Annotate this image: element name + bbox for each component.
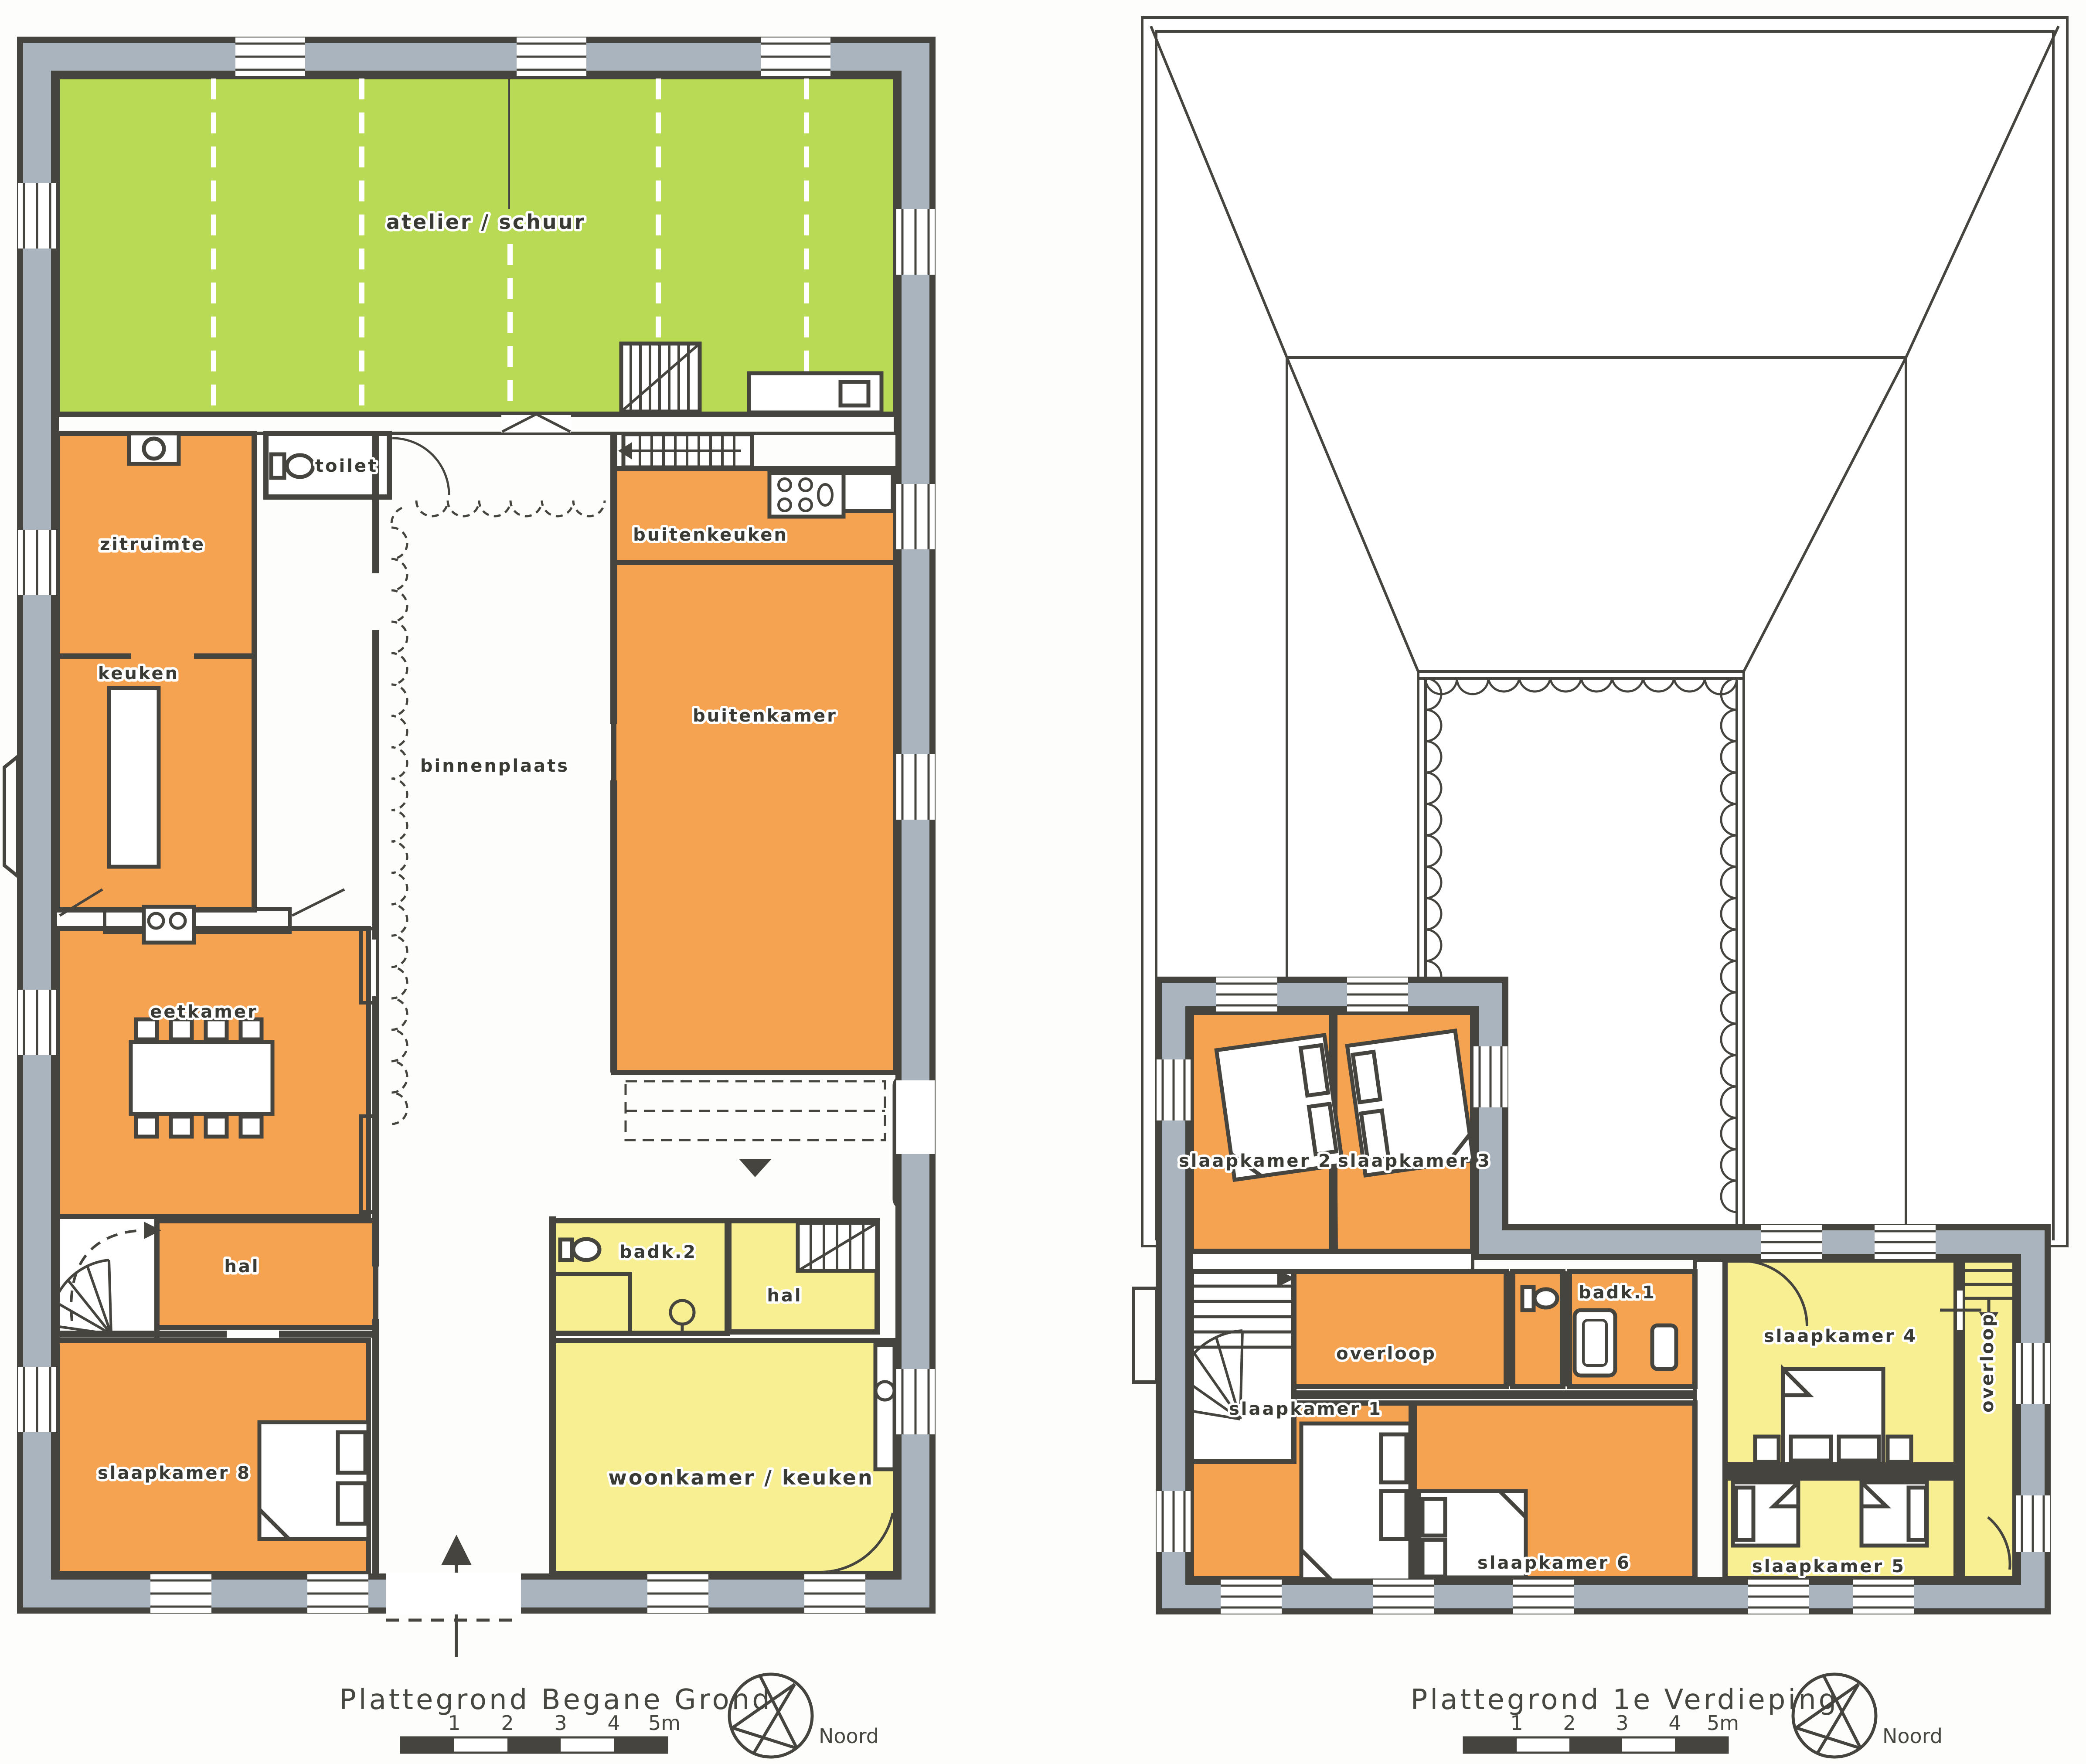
- room-woonkamer-keuken: [553, 1341, 895, 1573]
- window-icon: [307, 1574, 368, 1613]
- gate-opening: [386, 1573, 521, 1614]
- room-label-slaapkamer-8: slaapkamer 8: [98, 1463, 251, 1483]
- window-icon: [18, 183, 56, 249]
- section-marker-down: [739, 1159, 772, 1177]
- scale-tick: 4: [607, 1711, 620, 1735]
- window-icon: [2016, 1495, 2050, 1552]
- scale-tick: 3: [1616, 1711, 1628, 1735]
- north-label: Noord: [819, 1724, 879, 1748]
- window-icon: [18, 1367, 56, 1432]
- window-icon: [235, 37, 305, 76]
- room-label-slaapkamer-5: slaapkamer 5: [1752, 1556, 1906, 1577]
- scale-tick: 4: [1668, 1711, 1681, 1735]
- window-icon: [761, 37, 830, 76]
- window-icon: [1221, 1580, 1282, 1614]
- room-label-binnenplaats: binnenplaats: [420, 756, 569, 776]
- door-arc: [392, 438, 449, 495]
- room-label-badkamer-1: badk.1: [1579, 1283, 1656, 1303]
- window-icon: [1216, 977, 1277, 1011]
- kitchen-island-icon: [109, 688, 159, 867]
- scale-tick: 2: [501, 1711, 514, 1735]
- scale-bar: 1 2 3 4 5m: [401, 1711, 681, 1753]
- window-icon: [1875, 1225, 1936, 1259]
- room-label-hal-2: hal: [767, 1286, 802, 1306]
- room-label-slaapkamer-1: slaapkamer 1: [1229, 1399, 1382, 1419]
- window-icon: [2016, 1343, 2050, 1404]
- room-label-woonkamer-keuken: woonkamer / keuken: [608, 1466, 874, 1489]
- entry-platform: [749, 373, 881, 412]
- window-icon: [1513, 1580, 1574, 1614]
- wall-under-atelier: [57, 414, 895, 433]
- window-icon: [150, 1574, 211, 1613]
- counter-icon: [875, 1345, 895, 1469]
- north-label: Noord: [1882, 1724, 1943, 1748]
- room-label-buitenkeuken: buitenkeuken: [633, 525, 788, 545]
- bed-icon: [1733, 1482, 1798, 1546]
- room-label-atelier-schuur: atelier / schuur: [386, 210, 586, 234]
- stairs-icon: [618, 434, 752, 467]
- bed-icon: [1301, 1423, 1410, 1580]
- side-door-opening: [896, 1080, 935, 1154]
- window-icon: [18, 530, 56, 595]
- scale-tick: 5m: [648, 1711, 681, 1735]
- scale-bar: 1 2 3 4 5m: [1464, 1711, 1739, 1753]
- room-label-overloop: overloop: [1336, 1344, 1436, 1364]
- scale-tick: 1: [448, 1711, 460, 1735]
- dashed-canopy-outline: [626, 1081, 885, 1140]
- window-icon: [647, 1574, 708, 1613]
- entrance-arrow-icon: [441, 1535, 472, 1565]
- window-icon: [18, 990, 56, 1055]
- window-icon: [896, 1369, 935, 1434]
- window-icon: [1157, 1491, 1191, 1552]
- ground-floor-plan: atelier / schuur toilet zitruimte keuken…: [4, 37, 935, 1657]
- window-icon: [896, 754, 935, 820]
- window-icon: [1473, 1046, 1508, 1107]
- first-floor-caption: Plattegrond 1e Verdieping 1 2 3 4 5m Noo…: [1411, 1674, 1943, 1757]
- ground-floor-caption: Plattegrond Begane Grond 1 2 3 4 5m Noor…: [339, 1674, 879, 1757]
- wall-shaft: [1695, 1260, 1724, 1579]
- double-door: [501, 414, 571, 432]
- room-label-zitruimte: zitruimte: [100, 535, 205, 555]
- room-label-slaapkamer-2: slaapkamer 2: [1179, 1151, 1332, 1171]
- scale-tick: 3: [554, 1711, 567, 1735]
- scale-tick: 2: [1563, 1711, 1576, 1735]
- room-wc: [1513, 1271, 1563, 1386]
- nightstand-icon: [1888, 1437, 1911, 1462]
- room-label-buitenkamer: buitenkamer: [693, 706, 837, 726]
- window-icon: [1347, 977, 1408, 1011]
- chimney: [1133, 1288, 1157, 1382]
- window-icon: [896, 484, 935, 549]
- window-icon: [1761, 1225, 1822, 1259]
- fireplace-icon: [129, 433, 179, 464]
- scale-tick: 1: [1510, 1711, 1523, 1735]
- window-icon: [1853, 1580, 1914, 1614]
- courtyard-canopy-scallops: [391, 501, 605, 1124]
- toilet-icon: [271, 454, 313, 478]
- room-buitenkamer: [614, 562, 895, 1073]
- stairs-icon: [798, 1223, 877, 1271]
- room-label-slaapkamer-3: slaapkamer 3: [1338, 1151, 1491, 1171]
- room-label-hal-1: hal: [224, 1257, 259, 1277]
- stairs-icon: [621, 344, 700, 412]
- window-icon: [896, 209, 935, 275]
- stove-icon: [769, 473, 844, 517]
- room-label-slaapkamer-6: slaapkamer 6: [1477, 1553, 1631, 1573]
- window-icon: [1157, 1059, 1191, 1120]
- toilet-icon: [1522, 1287, 1557, 1310]
- room-label-toilet: toilet: [315, 456, 378, 476]
- first-floor-plan: slaapkamer 2 slaapkamer 3 overloop badk.…: [1133, 17, 2067, 1614]
- room-label-eetkamer: eetkamer: [150, 1002, 258, 1022]
- bed-icon: [1861, 1482, 1927, 1546]
- room-label-overloop-strip: overloop: [1977, 1312, 1998, 1413]
- nightstand-icon: [1755, 1437, 1779, 1462]
- room-atelier-schuur: [57, 77, 895, 414]
- scale-tick: 5m: [1707, 1711, 1739, 1735]
- bed-icon: [259, 1422, 368, 1539]
- window-icon: [1373, 1580, 1434, 1614]
- window-icon: [804, 1574, 865, 1613]
- bay-window: [4, 756, 18, 876]
- window-icon: [517, 37, 586, 76]
- floorplan-drawing: atelier / schuur toilet zitruimte keuken…: [0, 0, 2086, 1764]
- room-label-slaapkamer-4: slaapkamer 4: [1764, 1326, 1917, 1346]
- floorplan-page: atelier / schuur toilet zitruimte keuken…: [0, 0, 2086, 1764]
- toilet-icon: [560, 1239, 599, 1260]
- room-label-keuken: keuken: [98, 664, 179, 684]
- counter-icon: [844, 473, 893, 511]
- window-icon: [1748, 1580, 1809, 1614]
- room-label-badkamer-2: badk.2: [619, 1242, 697, 1262]
- room-badkamer-2: [553, 1221, 727, 1333]
